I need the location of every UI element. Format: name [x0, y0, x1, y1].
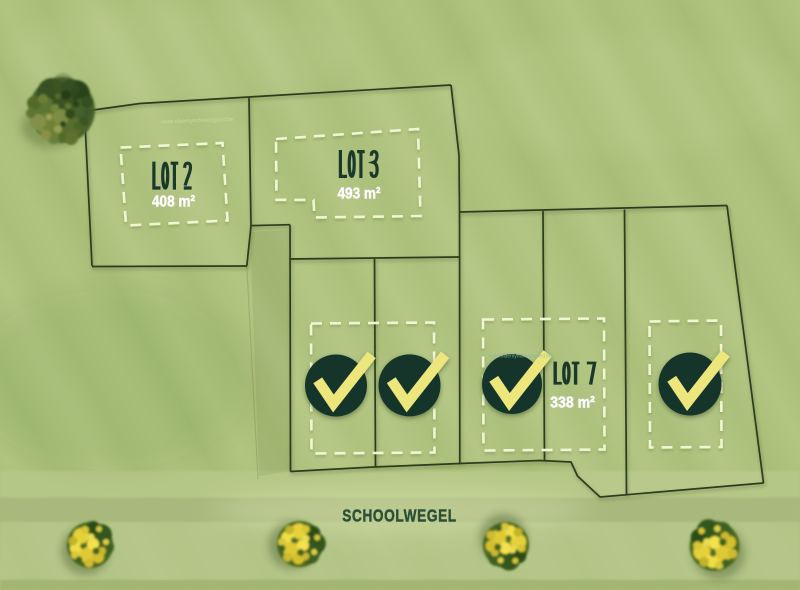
- svg-text:SCHOOLWEGEL: SCHOOLWEGEL: [342, 507, 457, 526]
- svg-text:493 m²: 493 m²: [337, 186, 380, 203]
- svg-text:338 m²: 338 m²: [550, 394, 595, 412]
- svg-text:408 m²: 408 m²: [152, 194, 195, 211]
- svg-text:www.vlaemynckvastgoed.be: www.vlaemynckvastgoed.be: [489, 354, 552, 360]
